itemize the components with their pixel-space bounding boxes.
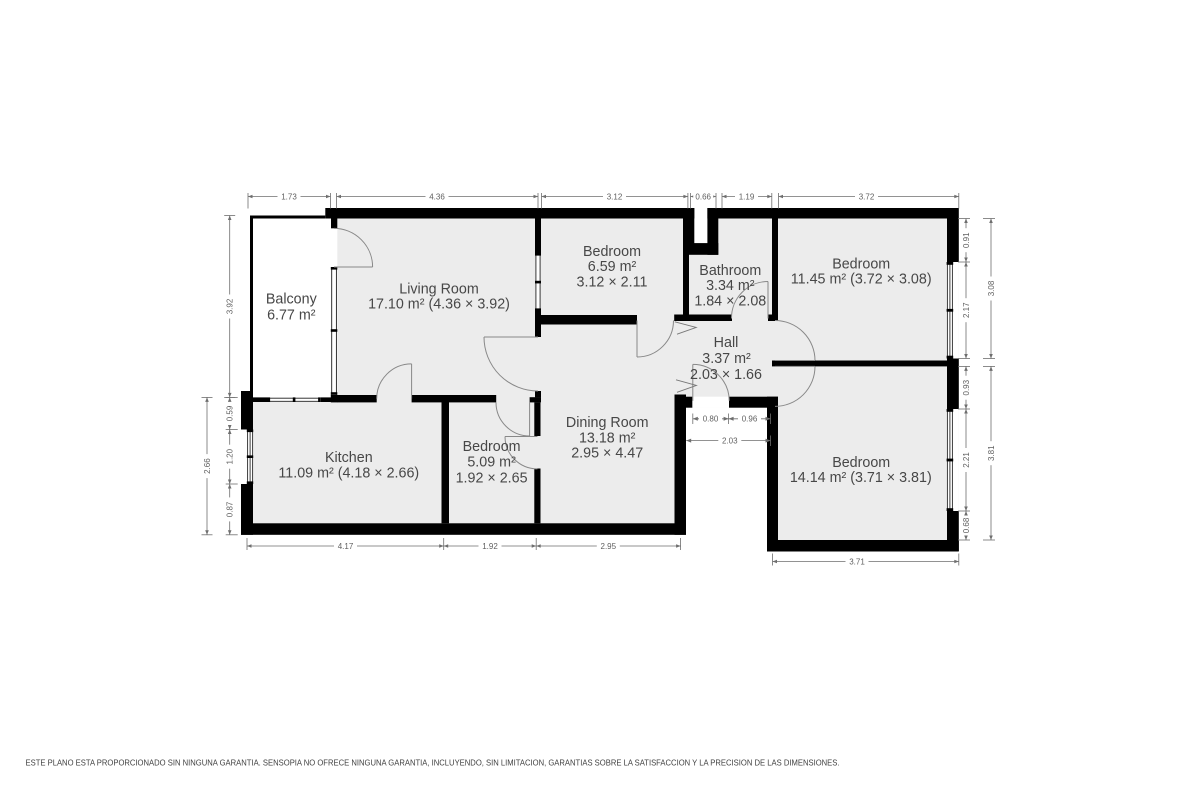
svg-text:2.66: 2.66 xyxy=(203,458,212,474)
svg-text:3.34 m²: 3.34 m² xyxy=(706,278,755,294)
svg-text:Hall: Hall xyxy=(714,335,739,351)
svg-text:3.12: 3.12 xyxy=(607,192,623,201)
svg-text:Bedroom: Bedroom xyxy=(832,455,890,471)
svg-text:0.93: 0.93 xyxy=(962,379,971,395)
svg-text:0.68: 0.68 xyxy=(962,517,971,533)
svg-text:3.71: 3.71 xyxy=(849,557,865,566)
svg-text:3.92: 3.92 xyxy=(225,298,234,314)
svg-text:11.09 m² (4.18 × 2.66): 11.09 m² (4.18 × 2.66) xyxy=(278,465,419,481)
svg-text:Living Room: Living Room xyxy=(399,282,478,298)
svg-text:2.03: 2.03 xyxy=(722,436,738,445)
svg-text:Bedroom: Bedroom xyxy=(832,257,890,273)
svg-text:Bedroom: Bedroom xyxy=(583,244,641,260)
svg-text:1.92: 1.92 xyxy=(482,542,498,551)
svg-text:2.95: 2.95 xyxy=(601,542,617,551)
svg-text:2.17: 2.17 xyxy=(962,302,971,318)
svg-text:2.21: 2.21 xyxy=(962,452,971,468)
svg-text:3.72: 3.72 xyxy=(859,192,875,201)
svg-text:Bedroom: Bedroom xyxy=(463,439,521,455)
svg-text:4.36: 4.36 xyxy=(429,192,445,201)
svg-text:3.37 m²: 3.37 m² xyxy=(702,351,751,367)
svg-text:0.87: 0.87 xyxy=(226,501,235,517)
svg-text:Dining Room: Dining Room xyxy=(566,415,649,431)
svg-text:0.66: 0.66 xyxy=(695,192,711,201)
svg-text:1.92 × 2.65: 1.92 × 2.65 xyxy=(456,471,528,487)
svg-text:1.19: 1.19 xyxy=(739,192,755,201)
svg-text:0.96: 0.96 xyxy=(742,415,758,424)
svg-text:17.10 m² (4.36 × 3.92): 17.10 m² (4.36 × 3.92) xyxy=(368,297,510,313)
svg-text:11.45 m² (3.72 × 3.08): 11.45 m² (3.72 × 3.08) xyxy=(791,272,932,288)
svg-text:3.81: 3.81 xyxy=(987,445,996,461)
svg-text:0.80: 0.80 xyxy=(703,415,719,424)
svg-text:Balcony: Balcony xyxy=(266,292,318,308)
svg-text:0.91: 0.91 xyxy=(962,232,971,248)
svg-text:14.14 m² (3.71 × 3.81): 14.14 m² (3.71 × 3.81) xyxy=(790,470,932,486)
svg-text:5.09 m²: 5.09 m² xyxy=(467,455,516,471)
svg-text:1.84 × 2.08: 1.84 × 2.08 xyxy=(694,293,766,309)
svg-text:Kitchen: Kitchen xyxy=(325,450,373,466)
svg-text:1.20: 1.20 xyxy=(225,448,234,464)
svg-text:13.18 m²: 13.18 m² xyxy=(579,430,636,446)
svg-text:3.12 × 2.11: 3.12 × 2.11 xyxy=(577,275,648,291)
svg-text:3.08: 3.08 xyxy=(987,280,996,296)
svg-text:6.59 m²: 6.59 m² xyxy=(588,259,637,275)
svg-text:2.95 × 4.47: 2.95 × 4.47 xyxy=(571,446,643,462)
svg-text:4.17: 4.17 xyxy=(338,542,354,551)
svg-text:0.59: 0.59 xyxy=(225,405,234,421)
svg-text:2.03 × 1.66: 2.03 × 1.66 xyxy=(690,367,762,383)
svg-text:6.77 m²: 6.77 m² xyxy=(267,307,316,323)
svg-text:Bathroom: Bathroom xyxy=(699,263,761,279)
svg-text:ESTE PLANO ESTA PROPORCIONADO: ESTE PLANO ESTA PROPORCIONADO SIN NINGUN… xyxy=(26,757,840,767)
svg-text:1.73: 1.73 xyxy=(281,192,297,201)
